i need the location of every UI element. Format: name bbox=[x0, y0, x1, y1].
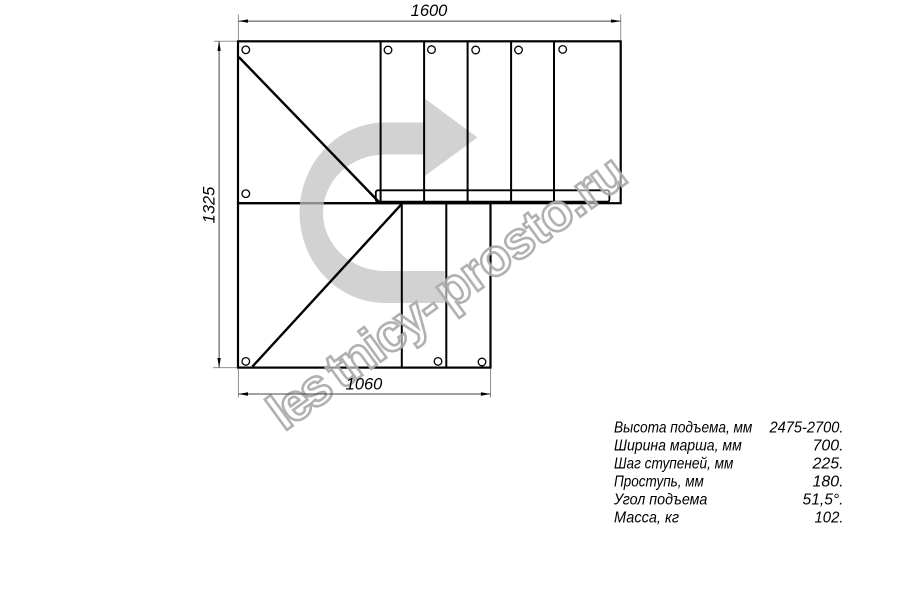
svg-text:Масса, кг: Масса, кг bbox=[614, 509, 679, 526]
svg-text:1325: 1325 bbox=[201, 186, 219, 224]
svg-text:2475-2700.: 2475-2700. bbox=[769, 420, 844, 437]
svg-text:180.: 180. bbox=[813, 474, 844, 491]
svg-text:Угол подъема: Угол подъема bbox=[613, 491, 707, 508]
svg-text:1600: 1600 bbox=[411, 2, 449, 20]
svg-text:Шаг ступеней, мм: Шаг ступеней, мм bbox=[614, 456, 733, 473]
svg-text:225.: 225. bbox=[812, 456, 844, 473]
svg-text:102.: 102. bbox=[815, 509, 844, 526]
svg-text:51,5°.: 51,5°. bbox=[803, 491, 844, 508]
svg-text:Ширина марша, мм: Ширина марша, мм bbox=[614, 438, 742, 455]
svg-text:Проступь, мм: Проступь, мм bbox=[614, 474, 704, 491]
svg-text:1060: 1060 bbox=[346, 376, 384, 394]
svg-text:Высота подъема, мм: Высота подъема, мм bbox=[614, 420, 752, 437]
svg-text:700.: 700. bbox=[813, 438, 844, 455]
